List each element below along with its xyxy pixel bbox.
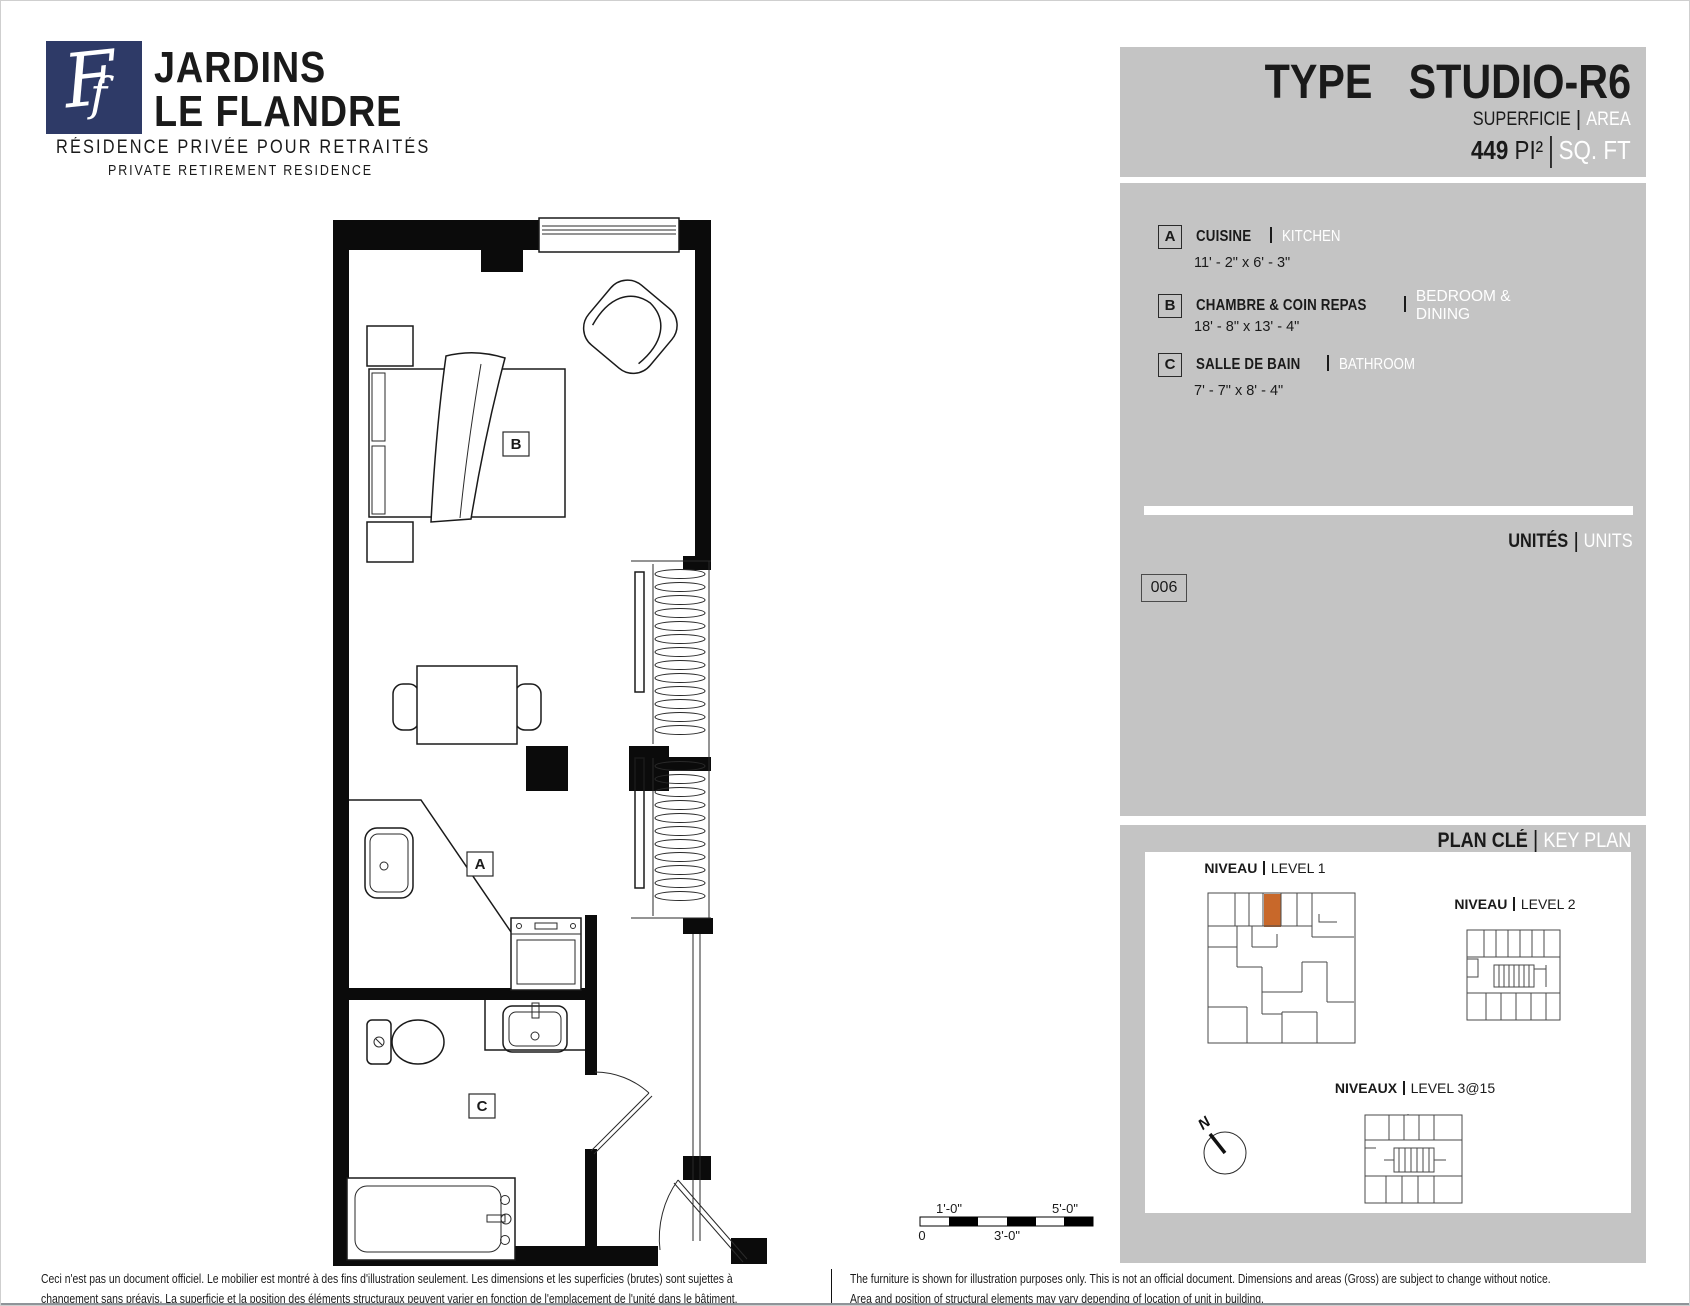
- nightstand-bottom: [367, 522, 413, 562]
- room-label-kitchen: A: [467, 852, 493, 876]
- keyplan-level3-label: NIVEAUXLEVEL 3@15: [1320, 1080, 1510, 1096]
- stove: [511, 918, 581, 990]
- room-label-bathroom: C: [469, 1094, 495, 1118]
- level1-name: LEVEL 1: [1271, 860, 1326, 876]
- legend-name-fr-b: CHAMBRE & COIN REPAS: [1196, 297, 1367, 315]
- area-labels-row: SUPERFICIEAREA: [1447, 109, 1631, 131]
- scale-bar: 1'-0" 5'-0" 0 3'-0": [911, 1193, 1101, 1245]
- bathtub: [347, 1178, 515, 1260]
- level2-name: LEVEL 2: [1521, 896, 1576, 912]
- scale-label-1ft: 1'-0": [936, 1201, 962, 1216]
- legend-item-bathroom: CSALLE DE BAINBATHROOM: [1158, 353, 1427, 377]
- level3-prefix: NIVEAUX: [1335, 1080, 1397, 1096]
- keyplan-title-fr: PLAN CLÉ: [1437, 829, 1527, 852]
- units-label-fr: UNITÉS: [1509, 531, 1569, 552]
- keyplan-level3-drawing: [1364, 1114, 1463, 1204]
- units-label-en: UNITS: [1584, 531, 1633, 552]
- units-heading: UNITÉSUNITS: [1488, 531, 1633, 553]
- legend-name-fr-c: SALLE DE BAIN: [1196, 356, 1300, 374]
- area-value: 449: [1471, 135, 1508, 165]
- bed: [369, 353, 565, 522]
- unit-number: 006: [1151, 579, 1178, 596]
- floorplan-sheet: F f JARDINS LE FLANDRE RÉSIDENCE PRIVÉE …: [0, 0, 1690, 1306]
- room-label-b-text: B: [511, 436, 522, 453]
- north-label: N: [1195, 1113, 1215, 1134]
- level2-prefix: NIVEAU: [1454, 896, 1507, 912]
- disclaimer-divider: [831, 1269, 832, 1303]
- logo-name-line2: LE FLANDRE: [154, 87, 443, 137]
- floor-plan: B: [319, 206, 779, 1266]
- units-divider: [1144, 506, 1633, 515]
- room-label-a-text: A: [475, 856, 486, 873]
- room-label-bedroom: B: [503, 432, 529, 456]
- page-bottom-rule: [1, 1303, 1690, 1305]
- armchair: [575, 271, 686, 382]
- scale-label-0: 0: [918, 1228, 925, 1243]
- legend-name-en-a: KITCHEN: [1282, 228, 1341, 246]
- kitchen-sink: [365, 828, 413, 898]
- keyplan-level2-drawing: [1466, 929, 1561, 1021]
- unit-number-badge: 006: [1141, 574, 1187, 602]
- legend-dims-b: 18' - 8" x 13' - 4": [1194, 319, 1299, 335]
- legend-key-a: A: [1158, 225, 1182, 249]
- disclaimer-fr-line1: Ceci n'est pas un document officiel. Le …: [41, 1269, 809, 1289]
- legend-name-en-c: BATHROOM: [1339, 356, 1415, 374]
- keyplan-level1-label: NIVEAULEVEL 1: [1165, 860, 1365, 876]
- unit-type-title: TYPESTUDIO-R6: [1205, 55, 1631, 110]
- legend-dims-a: 11' - 2" x 6' - 3": [1194, 255, 1290, 271]
- bathroom-vanity: [485, 1000, 585, 1052]
- level3-name: LEVEL 3@15: [1411, 1080, 1496, 1096]
- area-value-row: 449 PI²SQ. FT: [1445, 135, 1631, 168]
- logo-monogram: F f: [46, 41, 142, 134]
- dining-set: [393, 666, 541, 744]
- room-label-c-text: C: [477, 1098, 488, 1115]
- logo-subtitle-fr: RÉSIDENCE PRIVÉE POUR RETRAITÉS: [56, 137, 491, 159]
- area-label: AREA: [1586, 109, 1631, 130]
- closet-upper: [631, 561, 711, 918]
- scale-label-5ft: 5'-0": [1052, 1201, 1078, 1216]
- logo-name-line1: JARDINS: [154, 43, 354, 93]
- keyplan-level1-drawing: [1207, 892, 1356, 1044]
- highlighted-unit: [1264, 894, 1281, 927]
- superficie-label: SUPERFICIE: [1473, 109, 1571, 130]
- legend-dims-c: 7' - 7" x 8' - 4": [1194, 383, 1283, 399]
- legend-name-en-b: BEDROOM & DINING: [1416, 288, 1511, 323]
- legend-item-kitchen: ACUISINEKITCHEN: [1158, 225, 1350, 249]
- logo: F f JARDINS LE FLANDRE RÉSIDENCE PRIVÉE …: [46, 41, 466, 186]
- title-panel: TYPESTUDIO-R6 SUPERFICIEAREA 449 PI²SQ. …: [1120, 47, 1646, 177]
- scale-label-3ft: 3'-0": [994, 1228, 1020, 1243]
- window: [539, 218, 679, 252]
- type-value: STUDIO-R6: [1409, 56, 1631, 109]
- legend-name-fr-a: CUISINE: [1196, 228, 1251, 246]
- disclaimer-en-line1: The furniture is shown for illustration …: [850, 1269, 1634, 1289]
- nightstand-top: [367, 326, 413, 366]
- bathroom-door: [591, 1072, 652, 1154]
- keyplan-heading: PLAN CLÉKEY PLAN: [1406, 829, 1631, 853]
- legend-panel: ACUISINEKITCHEN 11' - 2" x 6' - 3" BCHAM…: [1120, 183, 1646, 816]
- legend-key-b: B: [1158, 294, 1182, 318]
- keyplan-level2-label: NIVEAULEVEL 2: [1445, 896, 1585, 912]
- logo-subtitle-en: PRIVATE RETIREMENT RESIDENCE: [108, 163, 416, 179]
- disclaimer-en: The furniture is shown for illustration …: [850, 1269, 1690, 1306]
- walls: [333, 220, 767, 1266]
- keyplan-title-en: KEY PLAN: [1543, 829, 1631, 852]
- level1-prefix: NIVEAU: [1204, 860, 1257, 876]
- logo-monogram-flourish: f: [90, 67, 107, 121]
- area-unit-en: SQ. FT: [1559, 135, 1631, 165]
- toilet: [367, 1020, 444, 1064]
- keyplan-panel: PLAN CLÉKEY PLAN NIVEAULEVEL 1 NIVEAULEV…: [1120, 825, 1646, 1263]
- legend-key-c: C: [1158, 353, 1182, 377]
- area-unit-fr: PI²: [1515, 135, 1544, 165]
- keyplan-canvas: NIVEAULEVEL 1 NIVEAULEVEL 2: [1145, 852, 1631, 1213]
- north-arrow: N: [1193, 1107, 1273, 1207]
- type-label: TYPE: [1265, 56, 1373, 109]
